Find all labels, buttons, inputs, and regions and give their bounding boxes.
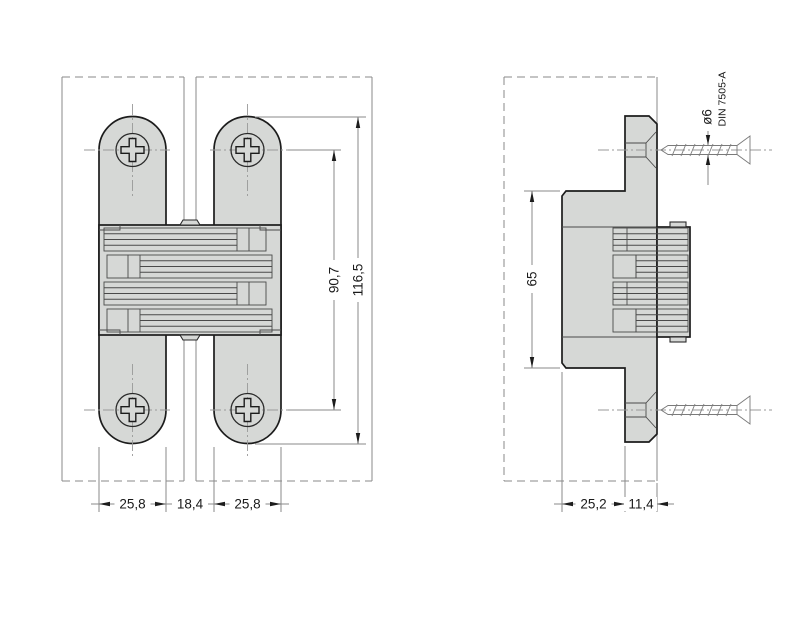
dim-label-overall-length: 116,5 [351, 264, 366, 297]
link-mechanism-front [99, 220, 281, 340]
dim-label-faceplate-depth: 11,4 [628, 497, 654, 512]
screw-standard-label: DIN 7505-A [717, 72, 729, 127]
link-tab-top [670, 222, 686, 227]
dim-label-right-plate-width: 25,8 [234, 497, 260, 512]
dim-label-body-depth: 25,2 [580, 497, 606, 512]
dim-label-hole-spacing: 90,7 [327, 267, 342, 293]
screw-front-top-left [116, 134, 149, 167]
dim-label-body-height: 65 [525, 271, 540, 286]
screw-front-top-right [231, 134, 264, 167]
screw-side-bottom [661, 396, 750, 424]
screw-front-bottom-right [231, 394, 264, 427]
screw-side-top [661, 136, 750, 164]
pivot-cap-bottom [180, 335, 200, 340]
dim-label-center-gap: 18,4 [177, 497, 204, 512]
side-view: 65 25,2 11,4 ø6 DIN 7505-A [504, 72, 772, 512]
hinge-body-profile [562, 116, 657, 442]
technical-drawing-page: 25,8 18,4 25,8 90,7 116,5 [0, 0, 800, 622]
screw-front-bottom-left [116, 394, 149, 427]
link-tab-bottom [670, 337, 686, 342]
front-view: 25,8 18,4 25,8 90,7 116,5 [62, 77, 372, 512]
pivot-cap-top [180, 220, 200, 225]
screw-diameter-label: ø6 [700, 109, 715, 125]
hinge-technical-drawing: 25,8 18,4 25,8 90,7 116,5 [0, 0, 800, 622]
dim-label-left-plate-width: 25,8 [119, 497, 145, 512]
